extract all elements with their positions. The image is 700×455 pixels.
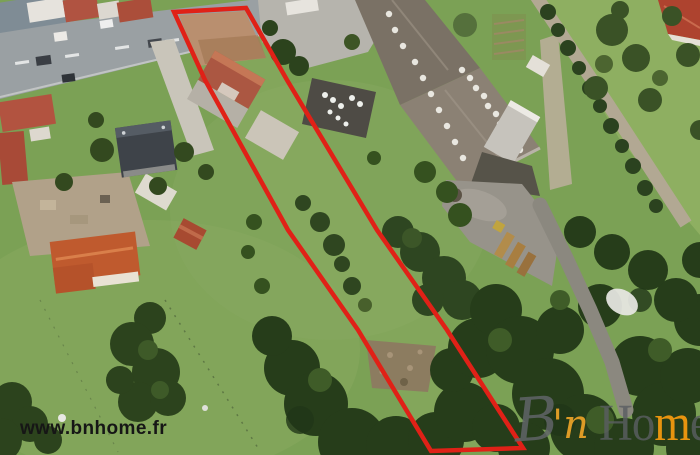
watermark-url: www.bnhome.fr bbox=[20, 418, 167, 440]
logo-letter-m: m bbox=[654, 395, 690, 452]
dirt-patch bbox=[366, 340, 436, 392]
logo-letter-o: o bbox=[632, 395, 655, 452]
brand-logo: B 'n Home bbox=[514, 390, 700, 450]
logo-word-home: Home bbox=[599, 398, 700, 450]
logo-letter-h: H bbox=[599, 395, 632, 452]
aerial-photo: www.bnhome.fr B 'n Home bbox=[0, 0, 700, 455]
aerial-scene bbox=[0, 0, 700, 455]
logo-letter-e: e bbox=[690, 395, 700, 452]
mansion bbox=[115, 120, 177, 177]
logo-letter-n: 'n bbox=[552, 405, 589, 445]
